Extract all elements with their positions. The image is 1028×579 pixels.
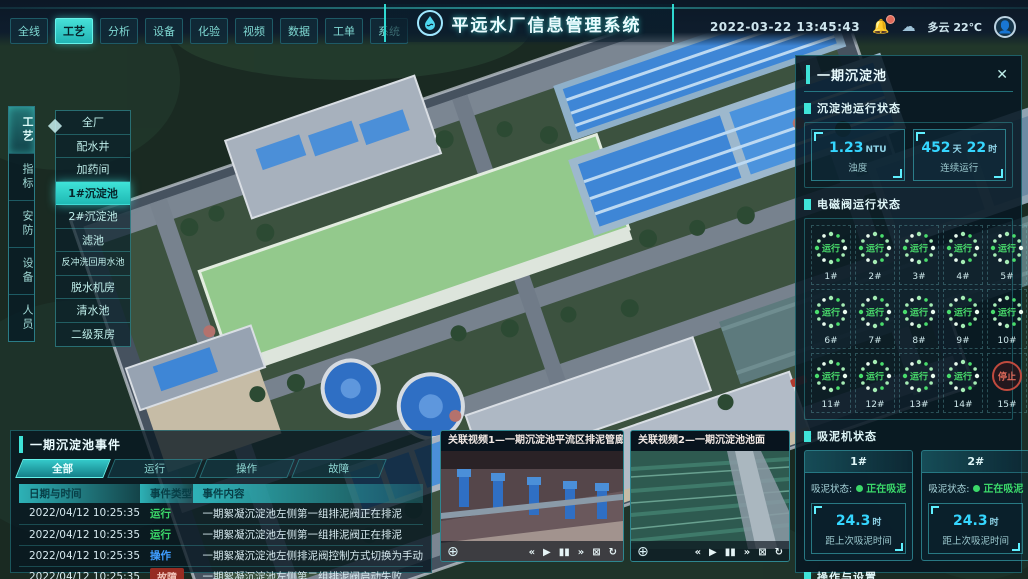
valve-running-gauge-icon: 运行 bbox=[944, 357, 982, 395]
mud-machine-1#: 1#吸泥状态:正在吸泥24.3时距上次吸泥时间 bbox=[804, 450, 913, 561]
event-row[interactable]: 2022/04/12 10:25:35操作一期絮凝沉淀池左侧排泥阀控制方式切换为… bbox=[19, 545, 423, 566]
video-panel-1: 关联视频1—一期沉淀池平流区排泥管廊 ⊕«▶▮▮»⊠↻ bbox=[440, 430, 624, 562]
turbidity-card: 1.23NTU 浊度 bbox=[811, 129, 905, 181]
event-tab-label: 运行 bbox=[112, 460, 198, 479]
event-type-badge: 故障 bbox=[150, 568, 184, 579]
valve-15#[interactable]: 停止15# bbox=[987, 353, 1027, 413]
pause-icon[interactable]: ▮▮ bbox=[559, 547, 570, 558]
event-row[interactable]: 2022/04/12 10:25:35运行一期絮凝沉淀池左侧第一组排泥阀正在排泥 bbox=[19, 524, 423, 545]
valve-12#[interactable]: 运行12# bbox=[855, 353, 895, 413]
event-tab-操作[interactable]: 操作 bbox=[199, 459, 295, 478]
column-header-日期与时间: 日期与时间 bbox=[19, 484, 140, 503]
valve-name: 14# bbox=[944, 400, 982, 410]
valve-running-gauge-icon: 运行 bbox=[856, 357, 894, 395]
valve-2#[interactable]: 运行2# bbox=[855, 225, 895, 285]
video-1-title: 关联视频1—一期沉淀池平流区排泥管廊 bbox=[441, 431, 623, 451]
menu-item-1#沉淀池[interactable]: 1#沉淀池 bbox=[56, 182, 130, 206]
runtime-label: 连续运行 bbox=[918, 160, 1002, 174]
turbidity-label: 浊度 bbox=[816, 160, 900, 174]
mud-time-unit: 时 bbox=[990, 518, 999, 528]
green-dot-icon bbox=[856, 485, 863, 492]
runtime-hours: 22 bbox=[967, 140, 986, 156]
ptz-pad-icon[interactable]: ⊕ bbox=[637, 544, 649, 560]
mud-time-value: 24.3 bbox=[953, 513, 988, 529]
mud-machine-name: 2# bbox=[922, 451, 1028, 473]
svg-text:运行: 运行 bbox=[910, 307, 928, 319]
turbidity-value: 1.23 bbox=[829, 140, 864, 156]
fullscreen-icon[interactable]: ⊠ bbox=[758, 547, 766, 558]
valve-running-gauge-icon: 运行 bbox=[988, 293, 1026, 331]
dashboard-root: 全线工艺分析设备化验视频数据工单系统 平远水厂信息管理系统 2022-03-22… bbox=[0, 0, 1028, 579]
green-dot-icon bbox=[973, 485, 980, 492]
mud-time-card: 24.3时距上次吸泥时间 bbox=[928, 503, 1023, 554]
event-tab-label: 操作 bbox=[204, 460, 290, 479]
menu-item-配水井[interactable]: 配水井 bbox=[56, 135, 130, 159]
valve-7#[interactable]: 运行7# bbox=[855, 289, 895, 349]
event-time: 2022/04/12 10:25:35 bbox=[19, 524, 140, 545]
valves-section: 运行1#运行2#运行3#运行4#运行5#运行6#运行7#运行8#运行9#运行10… bbox=[804, 218, 1013, 420]
valve-name: 10# bbox=[988, 336, 1026, 346]
event-row[interactable]: 2022/04/12 10:25:35故障一期絮凝沉淀池左侧第二组排泥阀启动失败 bbox=[19, 566, 423, 579]
valve-name: 7# bbox=[856, 336, 894, 346]
section-bullet-icon bbox=[804, 199, 811, 210]
column-header-事件类型: 事件类型 bbox=[140, 484, 192, 503]
event-type: 运行 bbox=[140, 524, 192, 545]
event-type: 操作 bbox=[140, 545, 192, 566]
mud-machine-name: 1# bbox=[805, 451, 912, 473]
runtime-card: 452天 22时 连续运行 bbox=[913, 129, 1007, 181]
mud-status-label: 吸泥状态: bbox=[928, 484, 969, 495]
valve-stopped-gauge-icon: 停止 bbox=[988, 357, 1026, 395]
svg-text:运行: 运行 bbox=[954, 243, 972, 255]
top-header: 全线工艺分析设备化验视频数据工单系统 平远水厂信息管理系统 2022-03-22… bbox=[0, 0, 1028, 46]
svg-text:运行: 运行 bbox=[866, 307, 884, 319]
event-tab-label: 全部 bbox=[20, 460, 106, 479]
section-bullet-icon bbox=[804, 431, 811, 442]
mud-time-label: 距上次吸泥时间 bbox=[814, 533, 903, 547]
play-icon[interactable]: ▶ bbox=[543, 547, 551, 558]
svg-text:运行: 运行 bbox=[866, 371, 884, 383]
svg-text:运行: 运行 bbox=[954, 307, 972, 319]
video-1-feed[interactable]: ⊕«▶▮▮»⊠↻ bbox=[441, 451, 623, 562]
event-row[interactable]: 2022/04/12 10:25:35运行一期絮凝沉淀池左侧第一组排泥阀正在排泥 bbox=[19, 503, 423, 524]
svg-text:运行: 运行 bbox=[954, 371, 972, 383]
event-type-badge: 操作 bbox=[150, 550, 171, 562]
left-tab-设备[interactable]: 设备 bbox=[9, 248, 34, 295]
column-header-事件内容: 事件内容 bbox=[193, 484, 424, 503]
menu-item-滤池[interactable]: 滤池 bbox=[56, 229, 130, 253]
valve-name: 6# bbox=[812, 336, 850, 346]
valve-name: 3# bbox=[900, 272, 938, 282]
left-category-tabs: 工艺指标安防设备人员 bbox=[8, 106, 35, 342]
valve-running-gauge-icon: 运行 bbox=[812, 293, 850, 331]
left-tab-安防[interactable]: 安防 bbox=[9, 201, 34, 248]
process-menu: 全厂配水井加药间1#沉淀池2#沉淀池滤池反冲洗回用水池脱水机房清水池二级泵房 bbox=[55, 110, 131, 347]
event-type: 运行 bbox=[140, 503, 192, 524]
valve-running-gauge-icon: 运行 bbox=[944, 293, 982, 331]
event-time: 2022/04/12 10:25:35 bbox=[19, 545, 140, 566]
svg-text:运行: 运行 bbox=[998, 243, 1016, 255]
valve-name: 5# bbox=[988, 272, 1026, 282]
mud-machine-status: 吸泥状态:正在吸泥 bbox=[922, 473, 1028, 497]
valve-status-grid: 运行1#运行2#运行3#运行4#运行5#运行6#运行7#运行8#运行9#运行10… bbox=[811, 225, 1006, 413]
detail-panel-header: 一期沉淀池 ✕ bbox=[804, 62, 1013, 92]
event-content: 一期絮凝沉淀池左侧第一组排泥阀正在排泥 bbox=[193, 503, 424, 524]
valve-name: 2# bbox=[856, 272, 894, 282]
section-bullet-icon bbox=[804, 103, 811, 114]
menu-item-全厂[interactable]: 全厂 bbox=[56, 111, 130, 135]
valves-section-title: 电磁阀运行状态 bbox=[804, 196, 1013, 212]
event-time: 2022/04/12 10:25:35 bbox=[19, 566, 140, 579]
valve-name: 8# bbox=[900, 336, 938, 346]
video-1-controls: ⊕«▶▮▮»⊠↻ bbox=[441, 541, 623, 562]
valve-name: 15# bbox=[988, 400, 1026, 410]
events-panel: 一期沉淀池事件 全部运行操作故障 日期与时间事件类型事件内容 2022/04/1… bbox=[10, 430, 432, 573]
top-tab-视频[interactable]: 视频 bbox=[235, 18, 273, 44]
valve-name: 12# bbox=[856, 400, 894, 410]
menu-item-清水池[interactable]: 清水池 bbox=[56, 299, 130, 323]
left-tab-工艺[interactable]: 工艺 bbox=[9, 107, 34, 154]
weather-cloud-icon: ☁ bbox=[902, 19, 916, 35]
valve-running-gauge-icon: 运行 bbox=[900, 357, 938, 395]
pause-icon[interactable]: ▮▮ bbox=[725, 547, 736, 558]
svg-text:运行: 运行 bbox=[866, 243, 884, 255]
menu-item-反冲洗回用水池[interactable]: 反冲洗回用水池 bbox=[56, 252, 130, 276]
valve-name: 9# bbox=[944, 336, 982, 346]
loop-icon[interactable]: ↻ bbox=[609, 547, 617, 558]
event-content: 一期絮凝沉淀池左侧第一组排泥阀正在排泥 bbox=[193, 524, 424, 545]
valve-14#[interactable]: 运行14# bbox=[943, 353, 983, 413]
mud-section-title: 吸泥机状态 bbox=[804, 428, 1013, 444]
valve-running-gauge-icon: 运行 bbox=[812, 229, 850, 267]
event-tab-运行[interactable]: 运行 bbox=[107, 459, 203, 478]
skip-back-icon[interactable]: « bbox=[529, 547, 535, 558]
svg-text:运行: 运行 bbox=[822, 307, 840, 319]
valve-4#[interactable]: 运行4# bbox=[943, 225, 983, 285]
video-panel-2: 关联视频2—一期沉淀池池面 ⊕«▶▮▮»⊠↻ bbox=[630, 430, 790, 562]
event-content: 一期絮凝沉淀池左侧排泥阀控制方式切换为手动 bbox=[193, 545, 424, 566]
svg-text:运行: 运行 bbox=[910, 371, 928, 383]
events-table: 日期与时间事件类型事件内容 2022/04/12 10:25:35运行一期絮凝沉… bbox=[19, 484, 423, 579]
valve-11#[interactable]: 运行11# bbox=[811, 353, 851, 413]
svg-text:运行: 运行 bbox=[998, 307, 1016, 319]
valve-name: 4# bbox=[944, 272, 982, 282]
user-avatar[interactable]: 👤 bbox=[994, 16, 1016, 38]
runtime-days: 452 bbox=[921, 140, 950, 156]
event-type-badge: 运行 bbox=[150, 529, 171, 541]
alarm-bell-icon[interactable]: 🔔 bbox=[872, 19, 889, 35]
skip-forward-icon[interactable]: » bbox=[744, 547, 750, 558]
app-title-bar: 平远水厂信息管理系统 bbox=[384, 4, 674, 42]
event-type-badge: 运行 bbox=[150, 508, 171, 520]
loop-icon[interactable]: ↻ bbox=[775, 547, 783, 558]
menu-item-加药间[interactable]: 加药间 bbox=[56, 158, 130, 182]
valve-10#[interactable]: 运行10# bbox=[987, 289, 1027, 349]
valve-8#[interactable]: 运行8# bbox=[899, 289, 939, 349]
event-time: 2022/04/12 10:25:35 bbox=[19, 503, 140, 524]
pool-status-section-title: 沉淀池运行状态 bbox=[804, 100, 1013, 116]
top-tab-工单[interactable]: 工单 bbox=[325, 18, 363, 44]
skip-back-icon[interactable]: « bbox=[695, 547, 701, 558]
video-2-controls: ⊕«▶▮▮»⊠↻ bbox=[631, 541, 789, 562]
top-tab-全线[interactable]: 全线 bbox=[10, 18, 48, 44]
top-tab-数据[interactable]: 数据 bbox=[280, 18, 318, 44]
valve-name: 11# bbox=[812, 400, 850, 410]
event-tab-label: 故障 bbox=[296, 460, 382, 479]
event-tab-故障[interactable]: 故障 bbox=[291, 459, 387, 478]
ops-section-title: 操作与设置 bbox=[804, 569, 1013, 579]
valve-13#[interactable]: 运行13# bbox=[899, 353, 939, 413]
top-tab-分析[interactable]: 分析 bbox=[100, 18, 138, 44]
close-icon[interactable]: ✕ bbox=[993, 67, 1011, 83]
mud-time-unit: 时 bbox=[872, 518, 881, 528]
valve-name: 13# bbox=[900, 400, 938, 410]
menu-item-2#沉淀池[interactable]: 2#沉淀池 bbox=[56, 205, 130, 229]
mud-machine-cards: 1#吸泥状态:正在吸泥24.3时距上次吸泥时间2#吸泥状态:正在吸泥24.3时距… bbox=[804, 450, 1013, 561]
weather-text: 多云 22℃ bbox=[928, 19, 982, 35]
video-2-title: 关联视频2—一期沉淀池池面 bbox=[631, 431, 789, 451]
valve-3#[interactable]: 运行3# bbox=[899, 225, 939, 285]
left-tab-人员[interactable]: 人员 bbox=[9, 295, 34, 341]
top-tab-化验[interactable]: 化验 bbox=[190, 18, 228, 44]
water-logo-icon bbox=[417, 10, 443, 36]
valve-running-gauge-icon: 运行 bbox=[812, 357, 850, 395]
event-content: 一期絮凝沉淀池左侧第二组排泥阀启动失败 bbox=[193, 566, 424, 579]
skip-forward-icon[interactable]: » bbox=[578, 547, 584, 558]
mud-machine-2#: 2#吸泥状态:正在吸泥24.3时距上次吸泥时间 bbox=[921, 450, 1028, 561]
detail-panel-title: 一期沉淀池 bbox=[806, 65, 887, 84]
mud-time-card: 24.3时距上次吸泥时间 bbox=[811, 503, 906, 554]
top-tab-工艺[interactable]: 工艺 bbox=[55, 18, 93, 44]
play-icon[interactable]: ▶ bbox=[709, 547, 717, 558]
mud-machine-status: 吸泥状态:正在吸泥 bbox=[805, 473, 912, 497]
event-tab-全部[interactable]: 全部 bbox=[15, 459, 111, 478]
valve-9#[interactable]: 运行9# bbox=[943, 289, 983, 349]
svg-text:运行: 运行 bbox=[910, 243, 928, 255]
mud-time-label: 距上次吸泥时间 bbox=[931, 533, 1020, 547]
fullscreen-icon[interactable]: ⊠ bbox=[592, 547, 600, 558]
valve-6#[interactable]: 运行6# bbox=[811, 289, 851, 349]
menu-item-二级泵房[interactable]: 二级泵房 bbox=[56, 323, 130, 347]
left-tab-指标[interactable]: 指标 bbox=[9, 154, 34, 201]
valve-running-gauge-icon: 运行 bbox=[856, 229, 894, 267]
alarm-badge bbox=[886, 15, 895, 24]
valve-name: 1# bbox=[812, 272, 850, 282]
mud-status-label: 吸泥状态: bbox=[811, 484, 852, 495]
top-tab-设备[interactable]: 设备 bbox=[145, 18, 183, 44]
valve-running-gauge-icon: 运行 bbox=[856, 293, 894, 331]
video-2-feed[interactable]: ⊕«▶▮▮»⊠↻ bbox=[631, 451, 789, 562]
datetime-display: 2022-03-22 13:45:43 bbox=[710, 20, 860, 34]
app-title: 平远水厂信息管理系统 bbox=[452, 11, 642, 36]
section-bullet-icon bbox=[804, 572, 811, 579]
svg-text:停止: 停止 bbox=[998, 371, 1016, 383]
top-nav-tabs: 全线工艺分析设备化验视频数据工单系统 bbox=[10, 18, 408, 44]
svg-text:运行: 运行 bbox=[822, 243, 840, 255]
ptz-pad-icon[interactable]: ⊕ bbox=[447, 544, 459, 560]
valve-running-gauge-icon: 运行 bbox=[988, 229, 1026, 267]
valve-5#[interactable]: 运行5# bbox=[987, 225, 1027, 285]
valve-running-gauge-icon: 运行 bbox=[900, 293, 938, 331]
valve-1#[interactable]: 运行1# bbox=[811, 225, 851, 285]
menu-item-脱水机房[interactable]: 脱水机房 bbox=[56, 276, 130, 300]
event-type: 故障 bbox=[140, 566, 192, 579]
detail-panel: 一期沉淀池 ✕ 沉淀池运行状态 1.23NTU 浊度 452天 22时 连续运行 bbox=[795, 55, 1022, 573]
event-filter-tabs: 全部运行操作故障 bbox=[19, 459, 423, 478]
svg-text:运行: 运行 bbox=[822, 371, 840, 383]
valve-running-gauge-icon: 运行 bbox=[900, 229, 938, 267]
header-right: 2022-03-22 13:45:43 🔔 ☁ 多云 22℃ 👤 bbox=[710, 16, 1016, 38]
pool-status-section: 1.23NTU 浊度 452天 22时 连续运行 bbox=[804, 122, 1013, 188]
valve-running-gauge-icon: 运行 bbox=[944, 229, 982, 267]
events-panel-title: 一期沉淀池事件 bbox=[19, 436, 423, 453]
mud-time-value: 24.3 bbox=[836, 513, 871, 529]
